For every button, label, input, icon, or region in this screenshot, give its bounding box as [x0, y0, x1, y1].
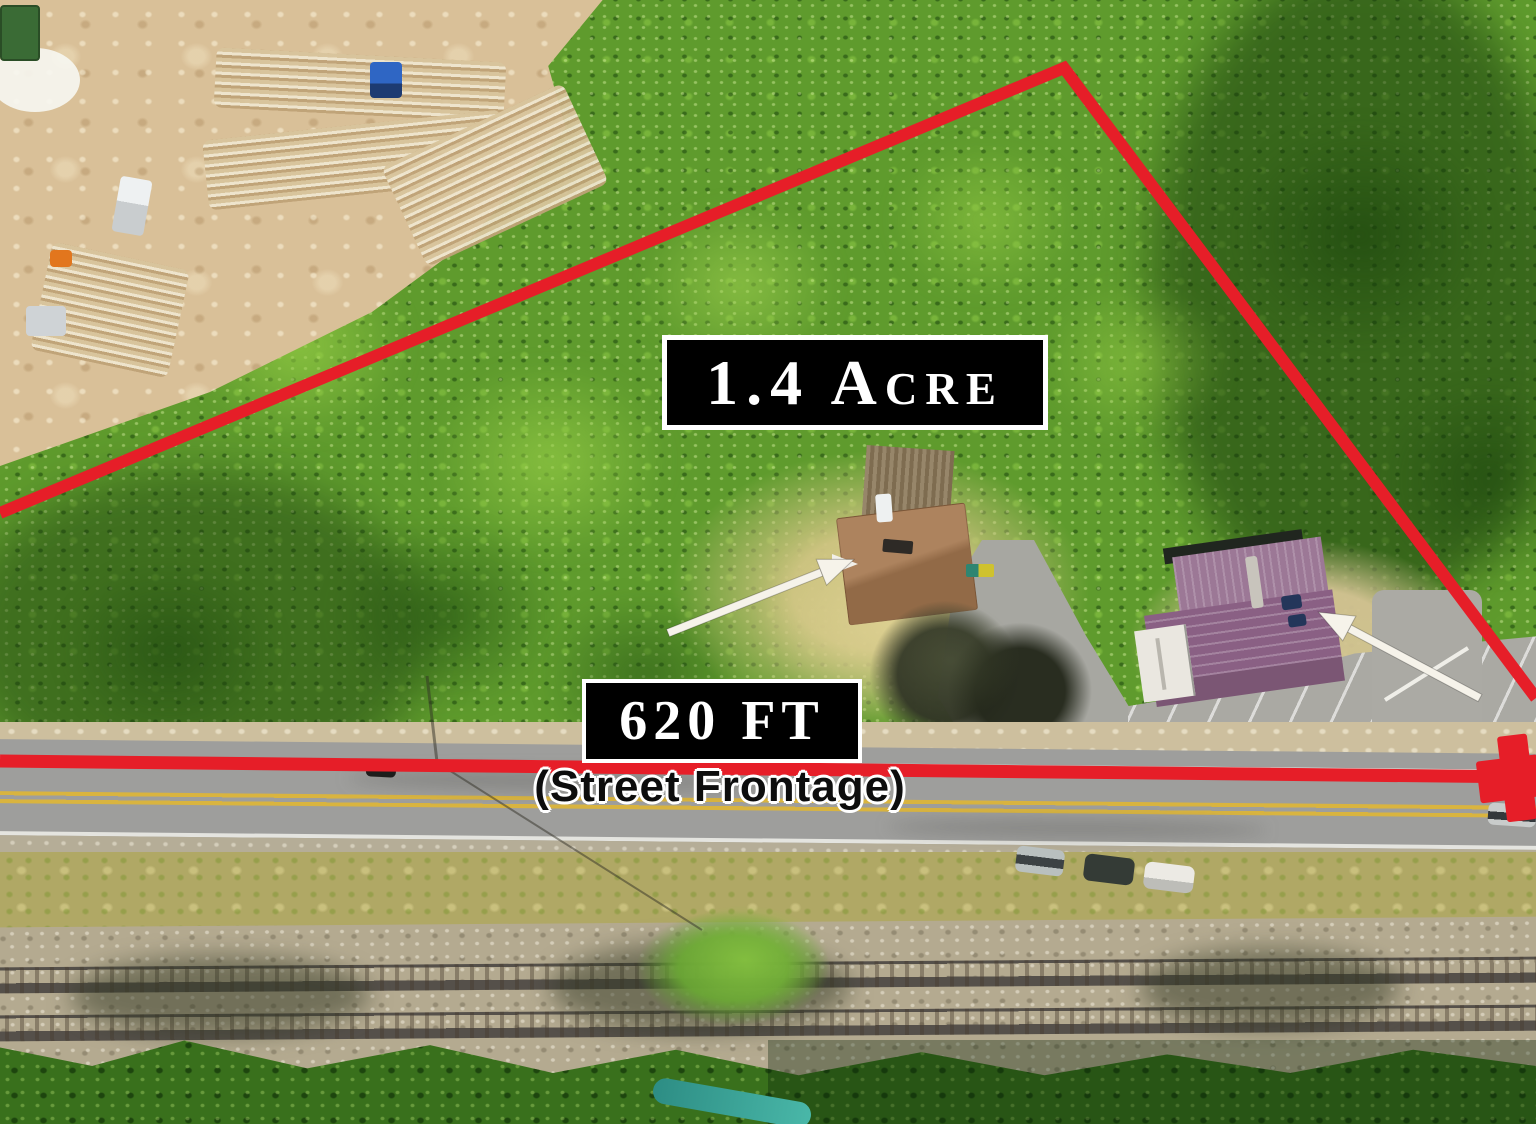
frontage-value: 620 FT: [619, 693, 825, 749]
frontage-caption: (Street Frontage): [510, 763, 930, 811]
utility-pole-shadow: [427, 676, 437, 762]
acreage-label-box: 1.4 Acre: [662, 335, 1048, 430]
arrow-to-house: [663, 546, 859, 646]
frontage-label-box: 620 FT: [582, 679, 862, 763]
boundary-corner-marker: [1473, 732, 1536, 825]
annotation-overlay: [0, 0, 1536, 1124]
acreage-label: 1.4 Acre: [706, 351, 1004, 415]
aerial-property-photo: 1.4 Acre 620 FT (Street Frontage): [0, 0, 1536, 1124]
